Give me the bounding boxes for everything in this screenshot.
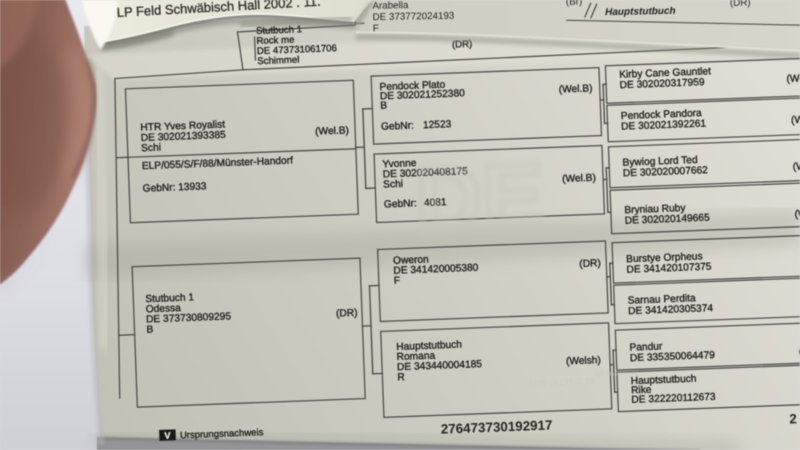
svg-text:GebNr:: GebNr:: [142, 182, 175, 194]
svg-text:GebNr:: GebNr:: [381, 121, 414, 133]
svg-text:(DR): (DR): [336, 308, 358, 320]
svg-text:(Wel.B): (Wel.B): [562, 173, 596, 185]
svg-text:Schimmel: Schimmel: [257, 55, 300, 68]
svg-text:(Br): (Br): [566, 0, 583, 8]
svg-text:(DR): (DR): [579, 258, 601, 270]
svg-text:DE: DE: [414, 145, 546, 252]
svg-text:headwin 15: headwin 15: [595, 368, 639, 380]
svg-text:DE 373772024193: DE 373772024193: [373, 11, 455, 23]
svg-text:Arabella: Arabella: [372, 0, 409, 12]
svg-text:F: F: [394, 276, 401, 287]
svg-text:GebNr:: GebNr:: [384, 198, 417, 210]
svg-text:Hauptstutbuch: Hauptstutbuch: [605, 6, 676, 18]
svg-text:(Wel.B): (Wel.B): [786, 73, 800, 85]
svg-text:(Wel.B): (Wel.B): [794, 208, 800, 220]
svg-text:(DR): (DR): [730, 0, 751, 9]
svg-text:R: R: [397, 372, 405, 383]
svg-text:(Wel.B): (Wel.B): [559, 83, 593, 95]
svg-text:(Wel.B): (Wel.B): [793, 161, 800, 173]
svg-text:B: B: [146, 324, 153, 335]
svg-text:(Welsh): (Welsh): [566, 355, 601, 367]
svg-text:F: F: [373, 23, 379, 34]
svg-text:Schi: Schi: [383, 179, 403, 191]
svg-text:(Wel.B): (Wel.B): [315, 125, 349, 137]
svg-text:B: B: [380, 100, 387, 111]
svg-text:2: 2: [789, 411, 797, 426]
svg-text:12523: 12523: [423, 119, 452, 131]
svg-text:Schi: Schi: [141, 142, 161, 154]
svg-text:13933: 13933: [178, 181, 207, 193]
svg-text:(Wel.B): (Wel.B): [791, 114, 800, 126]
